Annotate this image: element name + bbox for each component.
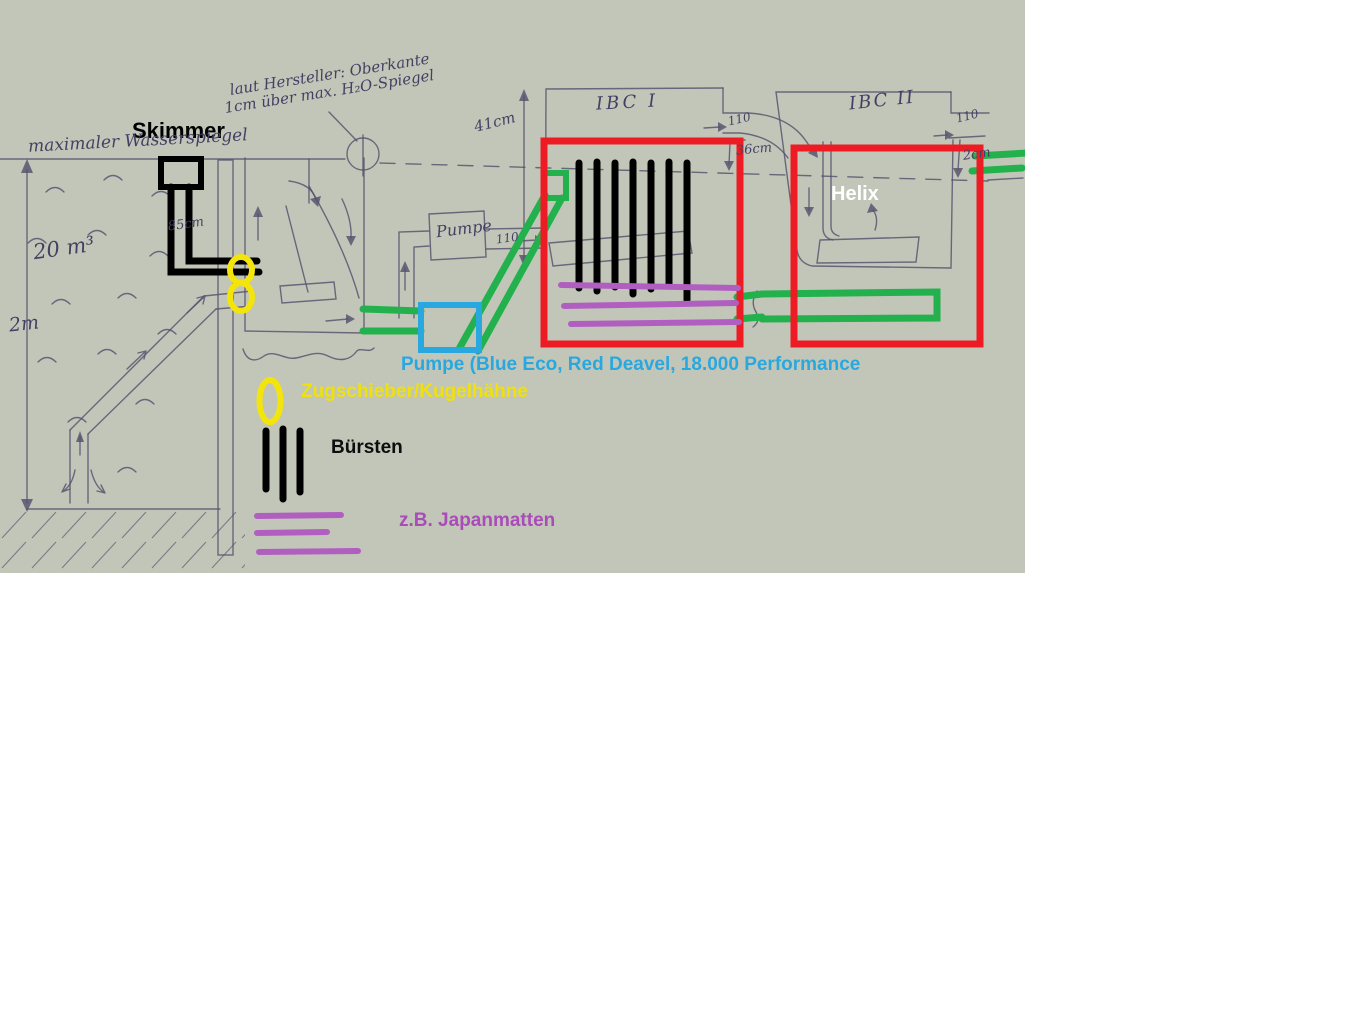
marker-annotations (161, 141, 1025, 552)
pump-legend-label: Pumpe (Blue Eco, Red Deavel, 18.000 Perf… (401, 354, 860, 376)
bottom-drain-pipe (62, 291, 252, 503)
sketch-photo: Skimmer Helix Pumpe (Blue Eco, Red Deave… (0, 0, 1025, 573)
valve-markers (230, 257, 252, 311)
legend-mat-icon (257, 515, 341, 516)
dimension-arrows (519, 89, 985, 267)
green-transfer-pipe (762, 292, 937, 319)
ibc1-label: IBC I (596, 91, 659, 115)
ibc2-grate (817, 237, 919, 263)
mats-legend-label: z.B. Japanmatten (399, 510, 555, 532)
legend-shapes (257, 380, 358, 552)
brushes-legend-label: Bürsten (331, 437, 403, 459)
screenshot-root: Skimmer Helix Pumpe (Blue Eco, Red Deave… (0, 0, 1371, 1029)
skimmer-box (161, 159, 201, 187)
brush-markers (579, 162, 687, 300)
helix-label: Helix (831, 183, 879, 206)
water-level-line-right (988, 178, 1023, 180)
wave-marks (28, 176, 176, 473)
legend-valve-icon (260, 380, 281, 422)
sketch-drawing (0, 0, 1025, 573)
ground-hatch (0, 512, 245, 570)
settling-chamber (243, 158, 374, 360)
note-pointer (329, 112, 379, 176)
valves-legend-label: Zugschieber/Kugelhähne (301, 381, 528, 403)
curly-brace (243, 348, 374, 360)
legend-mat-icon (259, 551, 358, 552)
drop-mid-label: 36cm (735, 141, 772, 159)
legend-mat-icon (257, 532, 327, 533)
pond-depth-label: 2m (8, 312, 40, 337)
pencil-sketch (0, 88, 1023, 570)
pond-wall (218, 160, 233, 555)
